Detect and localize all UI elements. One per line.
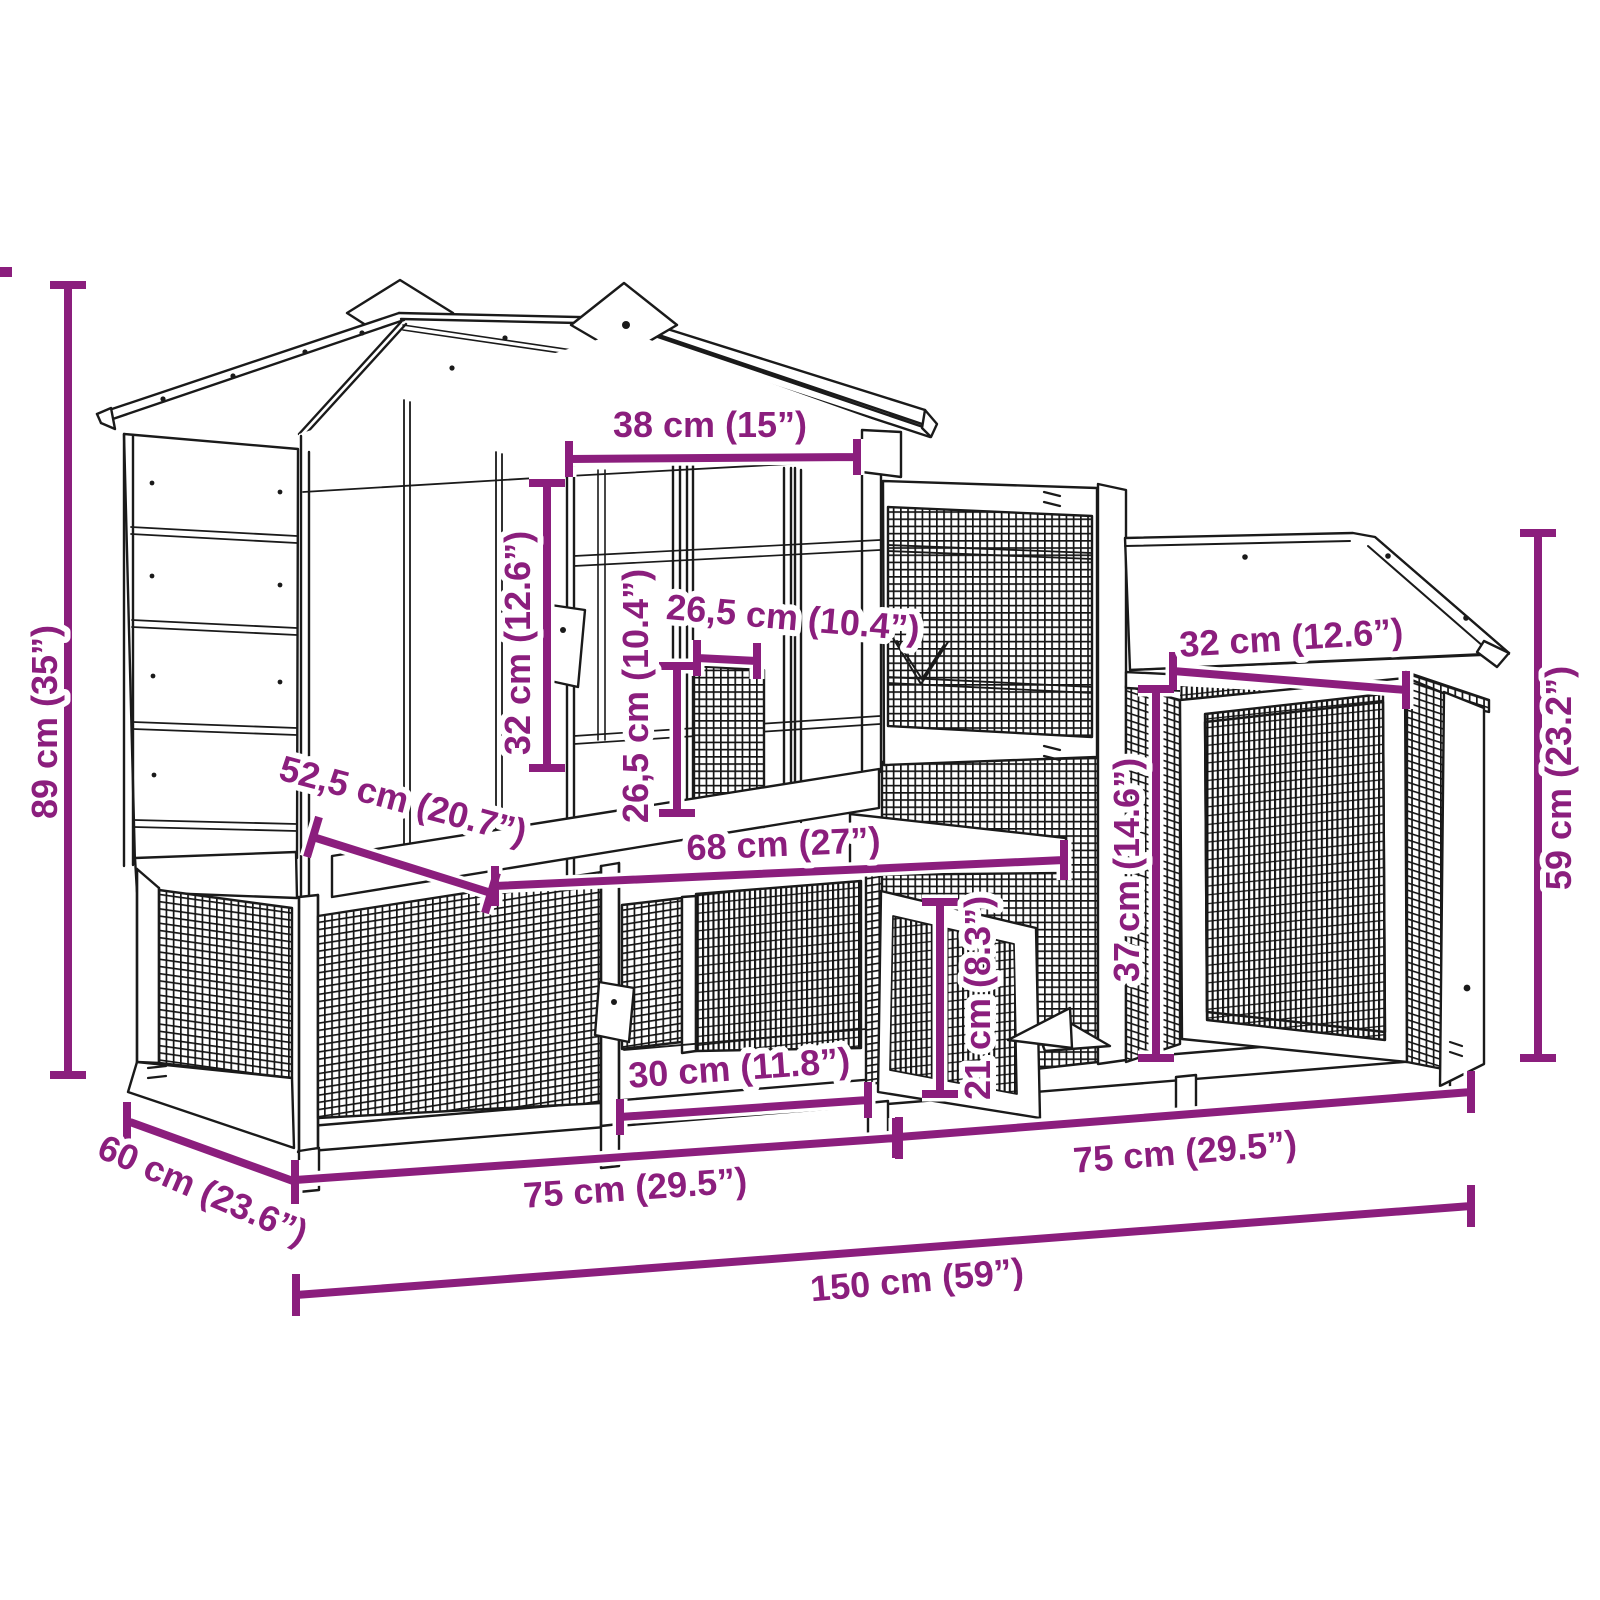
svg-text:89 cm (35”): 89 cm (35”): [24, 625, 65, 819]
svg-text:59 cm (23.2”): 59 cm (23.2”): [1538, 666, 1579, 890]
svg-text:26,5 cm (10.4”): 26,5 cm (10.4”): [615, 569, 656, 823]
svg-text:37 cm (14.6”): 37 cm (14.6”): [1106, 758, 1147, 982]
svg-text:32 cm (12.6”): 32 cm (12.6”): [497, 531, 538, 755]
svg-text:68 cm (27”): 68 cm (27”): [686, 819, 882, 868]
svg-text:21 cm (8.3”): 21 cm (8.3”): [957, 896, 998, 1100]
svg-text:38 cm (15”): 38 cm (15”): [613, 404, 807, 445]
